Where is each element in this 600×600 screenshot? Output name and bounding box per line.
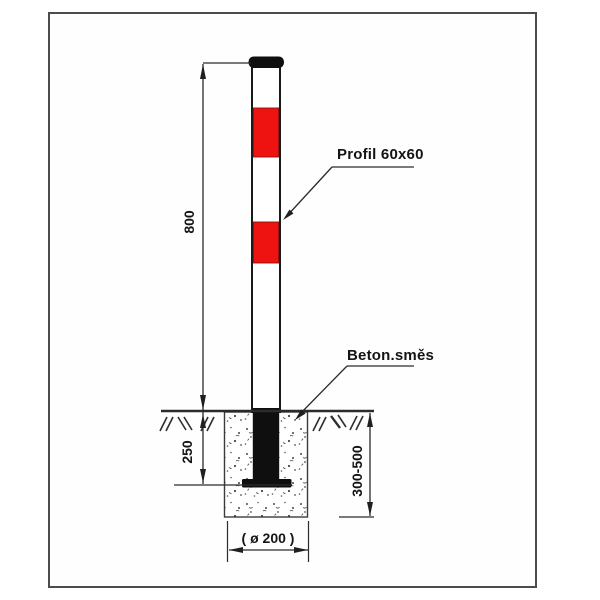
red-stripe-bottom bbox=[253, 222, 278, 263]
red-stripe-top bbox=[253, 108, 278, 157]
base-flange bbox=[242, 479, 292, 488]
concrete-callout-label: Beton.směs bbox=[347, 347, 434, 364]
profile-leader bbox=[283, 167, 414, 220]
profile-callout-label: Profil 60x60 bbox=[337, 146, 424, 163]
dim-200-label: ( ø 200 ) bbox=[242, 530, 295, 546]
dim-800-label: 800 bbox=[181, 210, 197, 233]
dim-250-label: 250 bbox=[179, 440, 195, 463]
underground-post-section bbox=[253, 408, 279, 480]
ground-hatch-left bbox=[160, 417, 214, 431]
dim-300-500-label: 300-500 bbox=[349, 445, 365, 496]
technical-drawing: Profil 60x60 Beton.směs 800 250 300-500 … bbox=[0, 0, 600, 600]
post-cap bbox=[249, 57, 285, 69]
ground-hatch-right bbox=[313, 415, 363, 431]
drawing-linework bbox=[0, 0, 600, 600]
